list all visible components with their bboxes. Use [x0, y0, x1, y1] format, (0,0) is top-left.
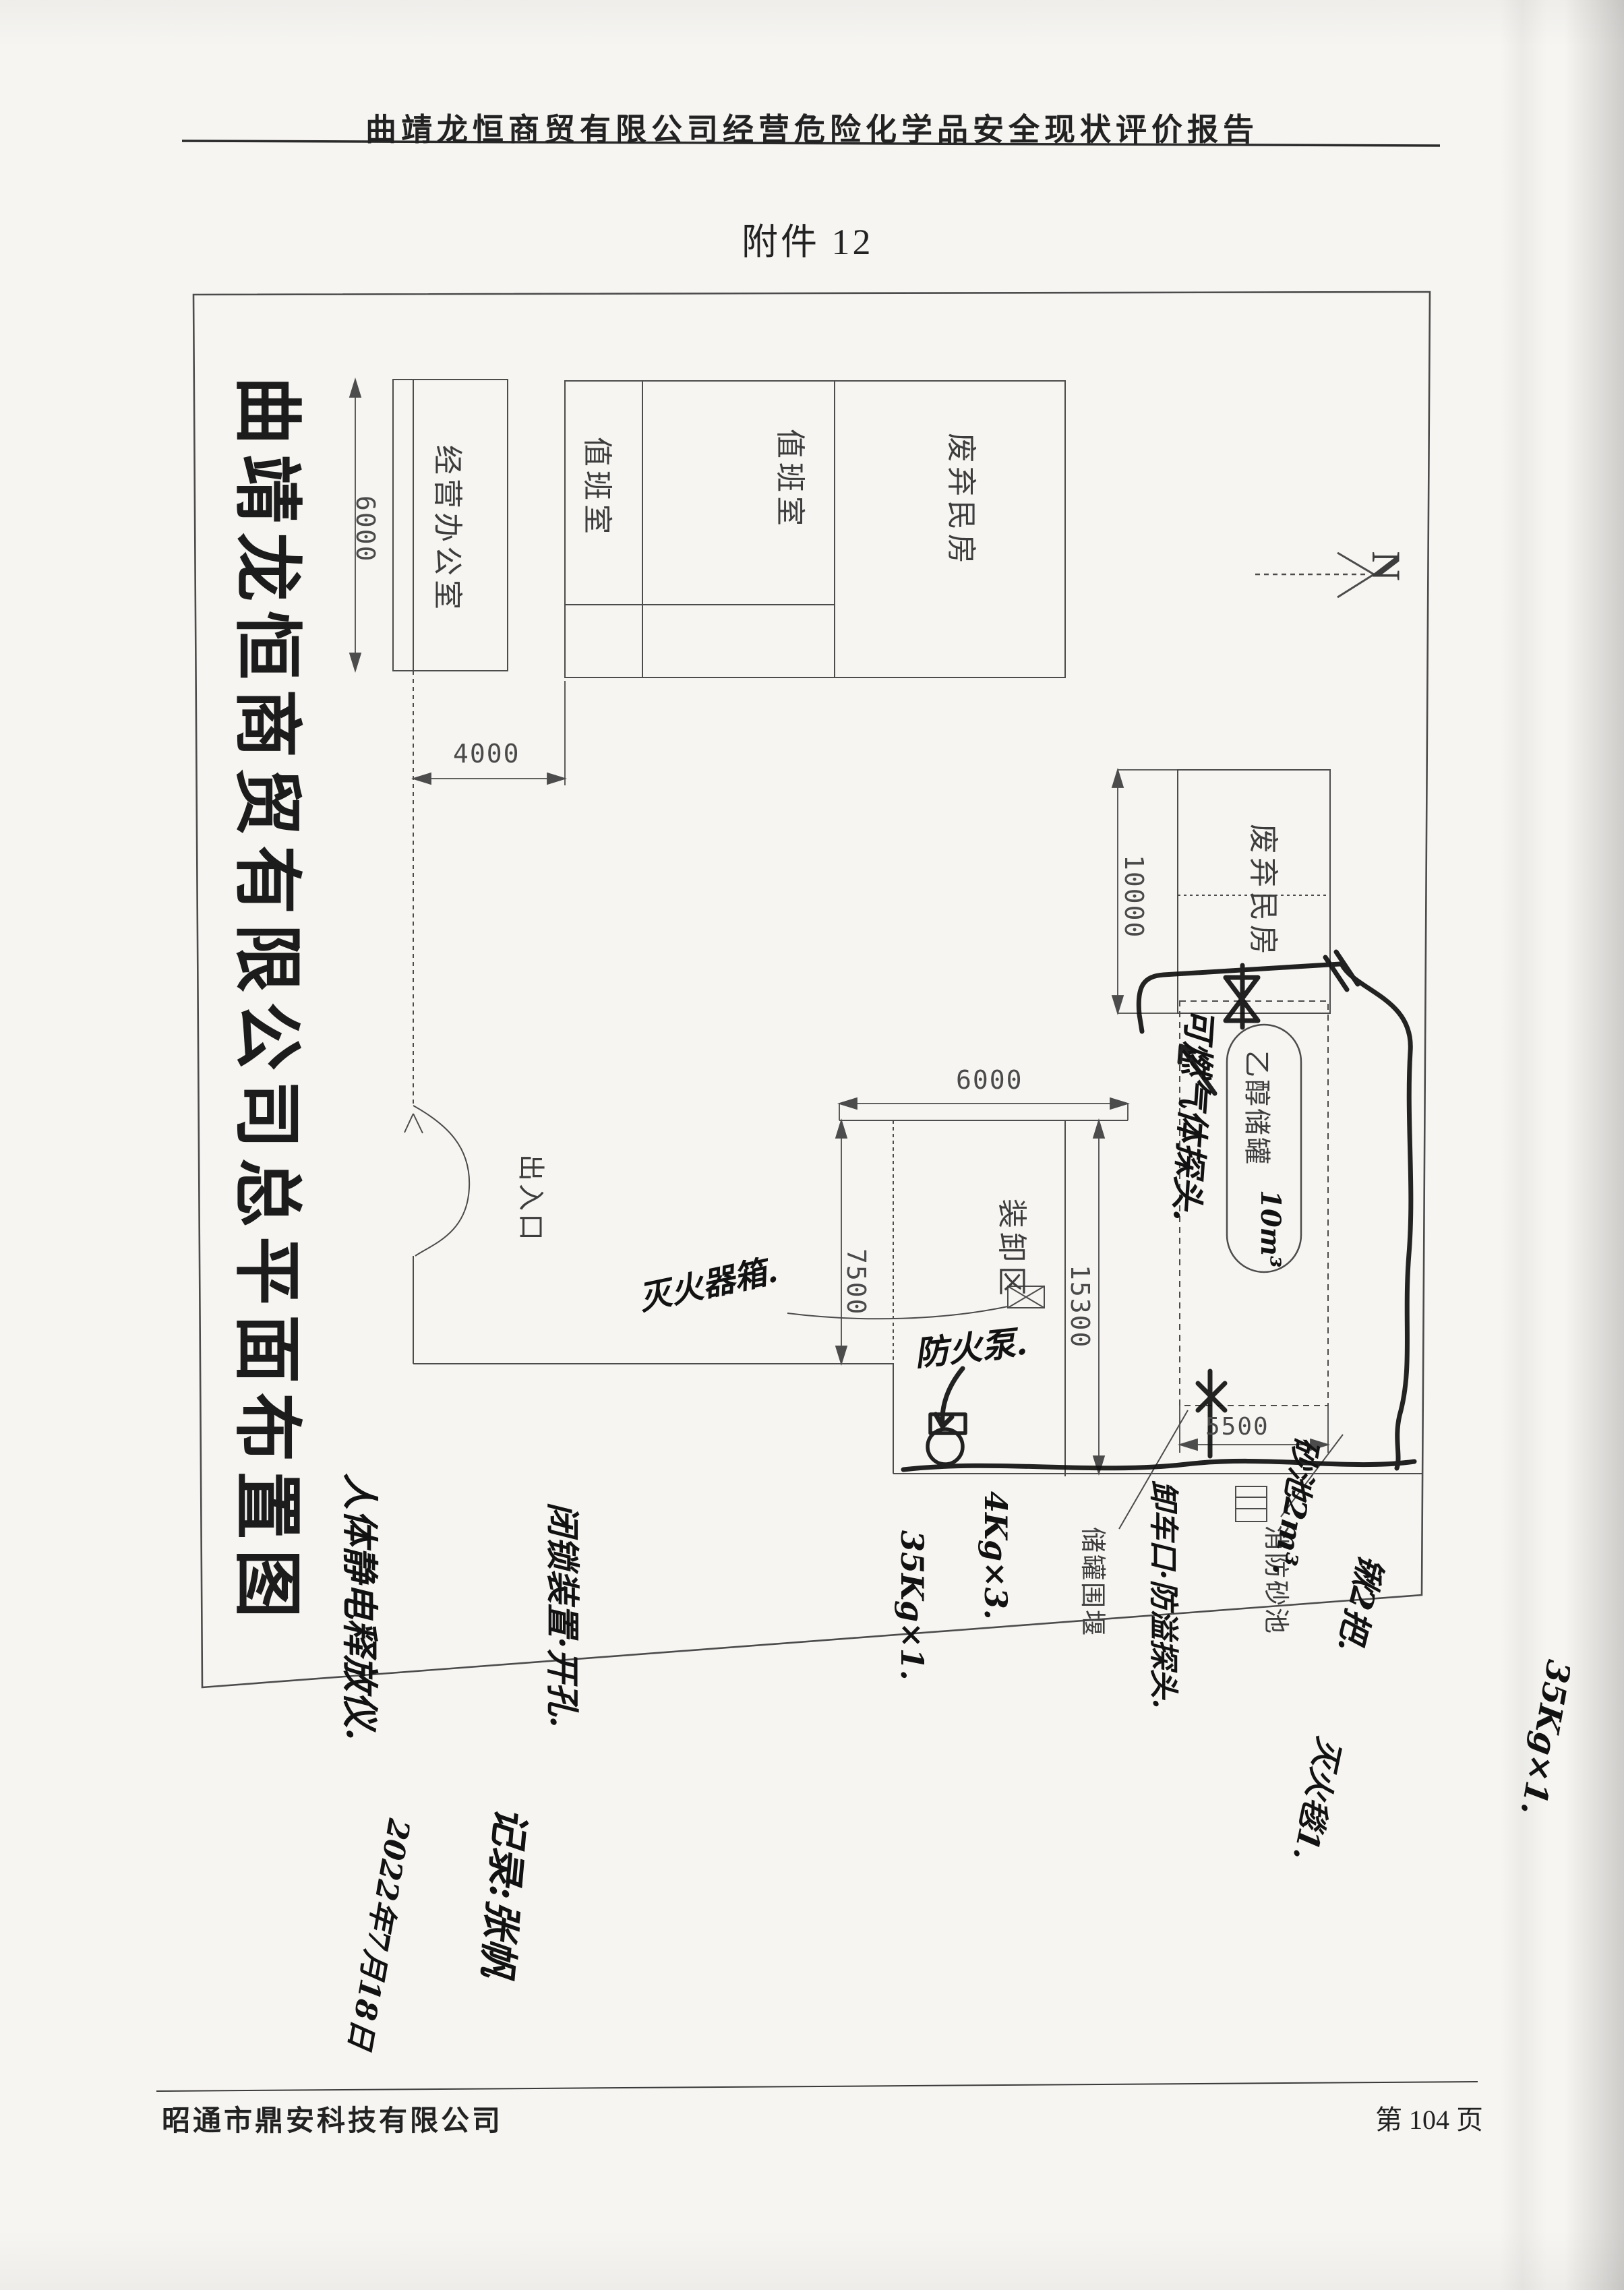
- hand-interlock-note: 闭锁装置·开孔.: [541, 1502, 589, 1728]
- attachment-label: 附件 12: [742, 212, 874, 265]
- hand-extinguisher-35kg: 35Kg×1.: [894, 1530, 930, 1681]
- east-wiggle-line-doodle: [1342, 964, 1411, 1468]
- gate-s-curve: [413, 1106, 469, 1256]
- north-arrow-icon: [1255, 553, 1374, 597]
- label-abandoned-house-right: 废弃民房: [1244, 824, 1288, 959]
- label-ethanol-tank: 乙醇储罐: [1240, 1050, 1279, 1166]
- label-duty-room-1: 值班室: [578, 437, 622, 538]
- dim-bund-width: 5500: [1205, 1413, 1269, 1441]
- north-label: N: [1362, 551, 1409, 580]
- hand-tank-capacity: 10m³: [1255, 1190, 1286, 1268]
- label-duty-room-2: 值班室: [771, 429, 814, 530]
- label-abandoned-house-top: 废弃民房: [942, 433, 986, 568]
- duty-building-outline: [565, 381, 1065, 677]
- pump-arrow-doodle: [936, 1368, 963, 1426]
- label-tank-bund: 储罐围堰: [1077, 1527, 1114, 1637]
- gate-arrow: [404, 1114, 423, 1133]
- dimension-lines: [350, 380, 1328, 1474]
- boundary-overline-doodle: [903, 1461, 1414, 1470]
- dim-office-offset: 4000: [453, 739, 520, 769]
- extinguisher-box-leader: [787, 1306, 1008, 1319]
- marker-doodles: [903, 952, 1414, 1470]
- dim-loading-height: 7500: [841, 1248, 871, 1316]
- drawing-title-vertical: 曲靖龙恒商贸有限公司总平面布置图: [223, 376, 322, 1627]
- dim-loading-width: 6000: [956, 1065, 1023, 1095]
- label-office: 经营办公室: [429, 445, 472, 613]
- label-loading-area: 装卸区: [993, 1199, 1036, 1300]
- dim-site-depth: 15300: [1065, 1265, 1095, 1348]
- footer-page-number: 第 104 页: [1375, 2098, 1483, 2137]
- hand-static-discharger: 人体静电释放仪.: [336, 1473, 390, 1741]
- dim-office-height: 6000: [351, 495, 380, 563]
- report-header-title: 曲靖龙恒商贸有限公司经营危险化学品安全现状评价报告: [365, 105, 1259, 150]
- hand-extinguisher-4kg: 4Kg×3.: [978, 1491, 1014, 1620]
- dim-abandoned-width: 10000: [1119, 855, 1149, 938]
- footer-company: 昭通市鼎安科技有限公司: [162, 2098, 503, 2139]
- scanned-report-page: 曲靖龙恒商贸有限公司经营危险化学品安全现状评价报告 附件 12 曲靖龙恒商贸有限…: [0, 0, 1624, 2290]
- label-entrance: 出入口: [514, 1154, 553, 1243]
- hand-unloading-note: 卸车口·防溢探头.: [1145, 1480, 1188, 1709]
